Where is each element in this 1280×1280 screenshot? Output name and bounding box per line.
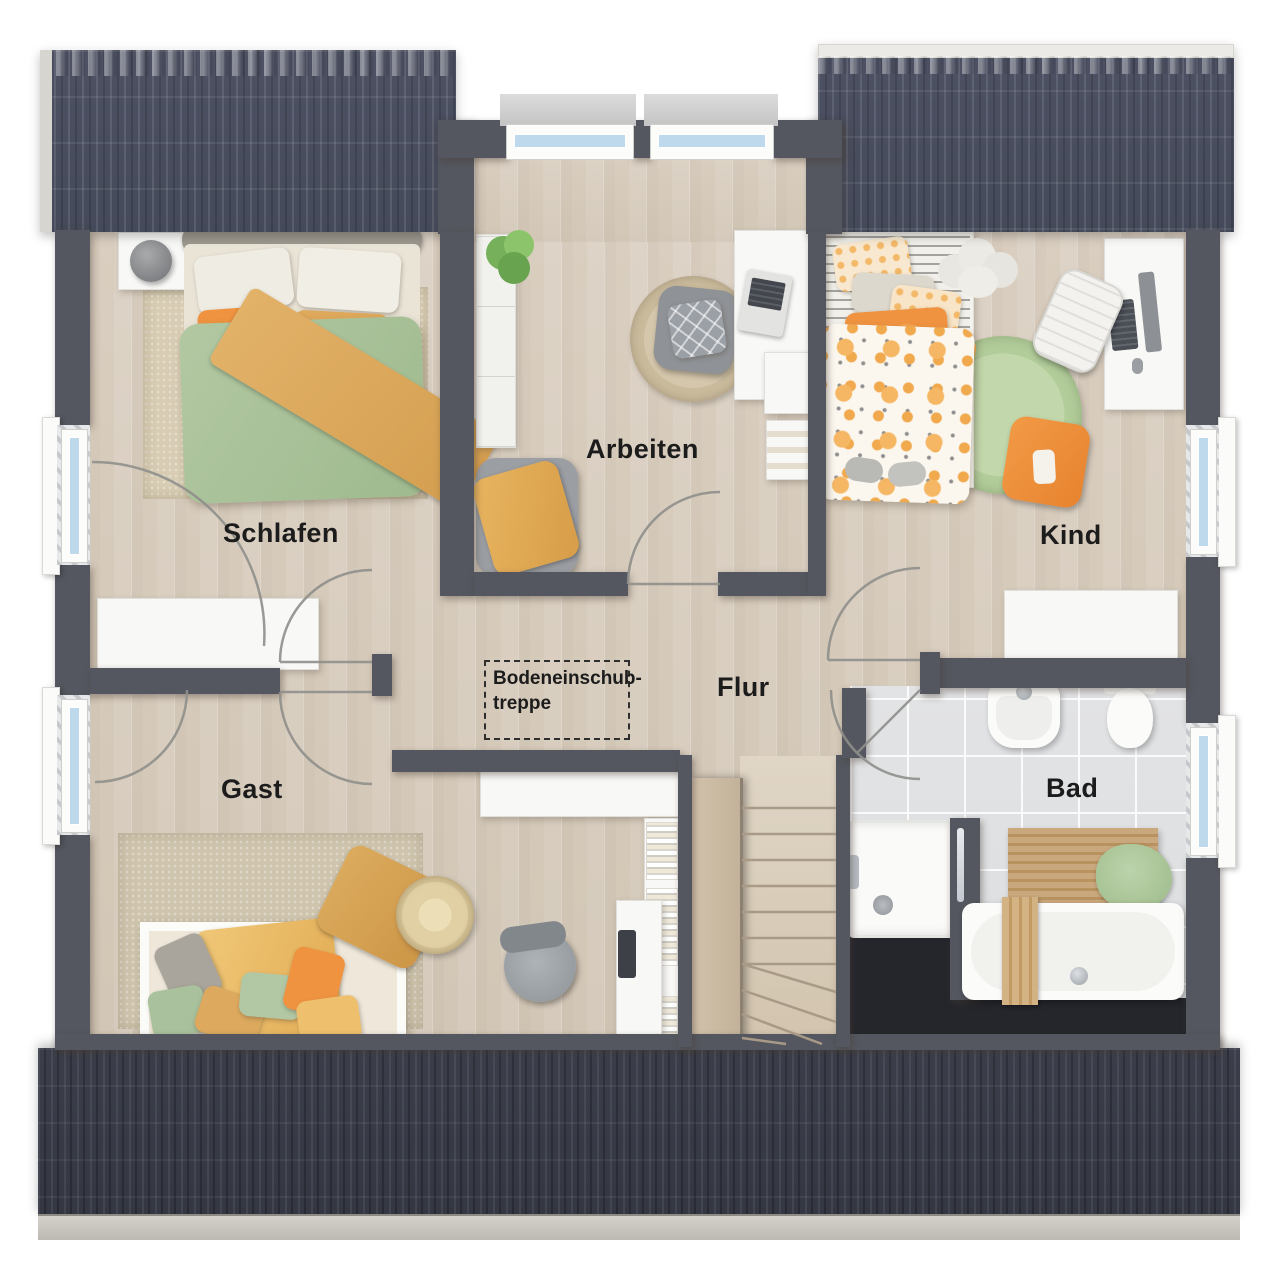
roof-bottom	[38, 1048, 1240, 1216]
window-sill	[1218, 417, 1236, 567]
wall-arbeiten-kind	[808, 232, 826, 596]
wall-schlafen-arbeiten	[440, 232, 474, 596]
bad-towel-green	[1096, 844, 1172, 910]
arbeiten-shelf	[764, 352, 812, 414]
roof-bottom-gutter	[38, 1214, 1240, 1240]
bad-towel-bar	[957, 828, 964, 902]
bad-bathtub	[962, 903, 1184, 1000]
wall-niche-stairs	[678, 755, 692, 1047]
attic-hatch-annotation-text: Bodeneinschub- treppe	[486, 662, 628, 716]
staircase-floor	[740, 756, 836, 1042]
wall-arbeiten-bottom-right	[718, 572, 808, 596]
wall-flur-gastniche	[392, 750, 680, 772]
room-label-arbeiten: Arbeiten	[586, 434, 699, 465]
room-label-flur: Flur	[717, 672, 770, 703]
wall-door-stub-right	[920, 652, 940, 694]
roof-top-left	[40, 50, 456, 232]
arbeiten-armchair-pillow	[666, 298, 728, 360]
sink-basin	[996, 696, 1052, 740]
kind-mouse	[1132, 358, 1143, 374]
dormer-window-glass	[514, 134, 626, 148]
bad-toilet	[1102, 680, 1158, 750]
wall-left-middle	[55, 565, 90, 695]
niche-desk-keyboard	[618, 930, 636, 978]
window-glass	[69, 437, 80, 555]
cloud-lobe	[958, 266, 998, 298]
attic-hatch-line2: treppe	[493, 692, 628, 717]
arbeiten-shelf	[766, 420, 814, 480]
shower-drain	[873, 895, 893, 915]
roof-top-right-gutter	[818, 56, 1234, 74]
room-label-bad: Bad	[1046, 773, 1098, 804]
roof-top-left-edge-board	[40, 50, 52, 232]
wall-door-stub-left	[372, 654, 392, 696]
plant-leaf	[498, 252, 530, 284]
wall-bottom	[55, 1034, 1220, 1050]
gast-wicker-pouf	[396, 876, 474, 954]
dormer-window-glass	[658, 134, 766, 148]
knee-wall-space-left-of-bath	[845, 930, 952, 1042]
attic-hatch-annotation-box: Bodeneinschub- treppe	[484, 660, 630, 740]
toilet-bowl	[1107, 688, 1153, 748]
window-glass	[1198, 735, 1209, 848]
book-stack	[646, 822, 678, 880]
attic-hatch-line1: Bodeneinschub-	[493, 667, 628, 692]
wall-left-upper	[55, 230, 90, 425]
schlafen-pillow-white	[296, 247, 402, 314]
floor-dormer-arbeiten	[474, 152, 808, 242]
wall-schlafen-gast	[90, 668, 280, 694]
wall-bad-left-upper	[842, 688, 866, 758]
dormer-window-sill	[644, 94, 778, 126]
window-sill	[1218, 715, 1236, 868]
room-label-schlafen: Schlafen	[223, 518, 339, 549]
window-glass	[69, 707, 80, 825]
kind-sideboard	[1004, 590, 1178, 660]
room-label-gast: Gast	[221, 774, 283, 805]
wall-right-lower	[1186, 858, 1220, 1048]
room-label-kind: Kind	[1040, 520, 1102, 551]
kind-floor-cushion-orange	[1000, 414, 1092, 509]
bathtub-faucet	[1070, 967, 1088, 985]
wall-left-lower	[55, 835, 90, 1048]
dormer-window-sill	[500, 94, 636, 126]
laptop-keys	[747, 277, 785, 310]
wall-stairs-bad	[836, 755, 850, 1047]
bad-shower-tray	[848, 820, 956, 938]
wall-kind-bottom	[940, 658, 1186, 688]
wall-arbeiten-bottom-left	[474, 572, 628, 596]
floor-plan: Schlafen Arbeiten Kind Flur Gast Bad Bod…	[0, 0, 1280, 1280]
roof-top-left-gutter	[40, 50, 456, 76]
wall-dormer-top-seg	[772, 120, 842, 158]
wall-right-middle	[1186, 557, 1220, 723]
bathtub-caddy	[1002, 897, 1038, 1005]
wall-dormer-top-seg	[438, 120, 508, 158]
staircase-parapet	[690, 778, 743, 1042]
wall-right-upper	[1186, 230, 1220, 425]
window-glass	[1198, 437, 1209, 547]
arbeiten-plant	[482, 230, 540, 288]
kind-cloud-pillow	[938, 236, 1022, 302]
bad-sink	[988, 682, 1060, 748]
schlafen-duvet-green	[179, 316, 427, 504]
schlafen-sideboard	[97, 598, 319, 670]
toy-on-cushion	[1032, 449, 1056, 484]
schlafen-lamp	[130, 240, 172, 282]
